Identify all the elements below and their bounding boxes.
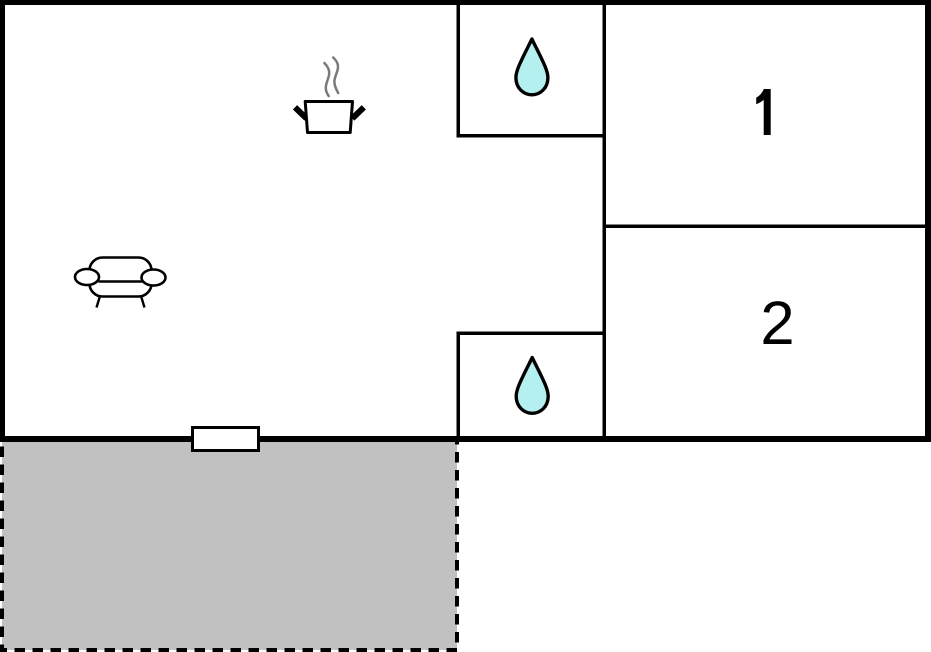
svg-text:2: 2 [760,289,794,358]
